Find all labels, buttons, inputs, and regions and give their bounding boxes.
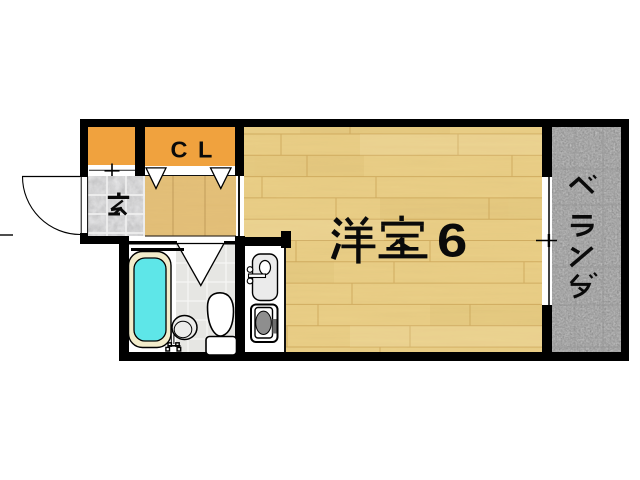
svg-text:L: L — [198, 136, 212, 162]
svg-text:C: C — [171, 136, 188, 162]
svg-text:6: 6 — [437, 214, 467, 267]
